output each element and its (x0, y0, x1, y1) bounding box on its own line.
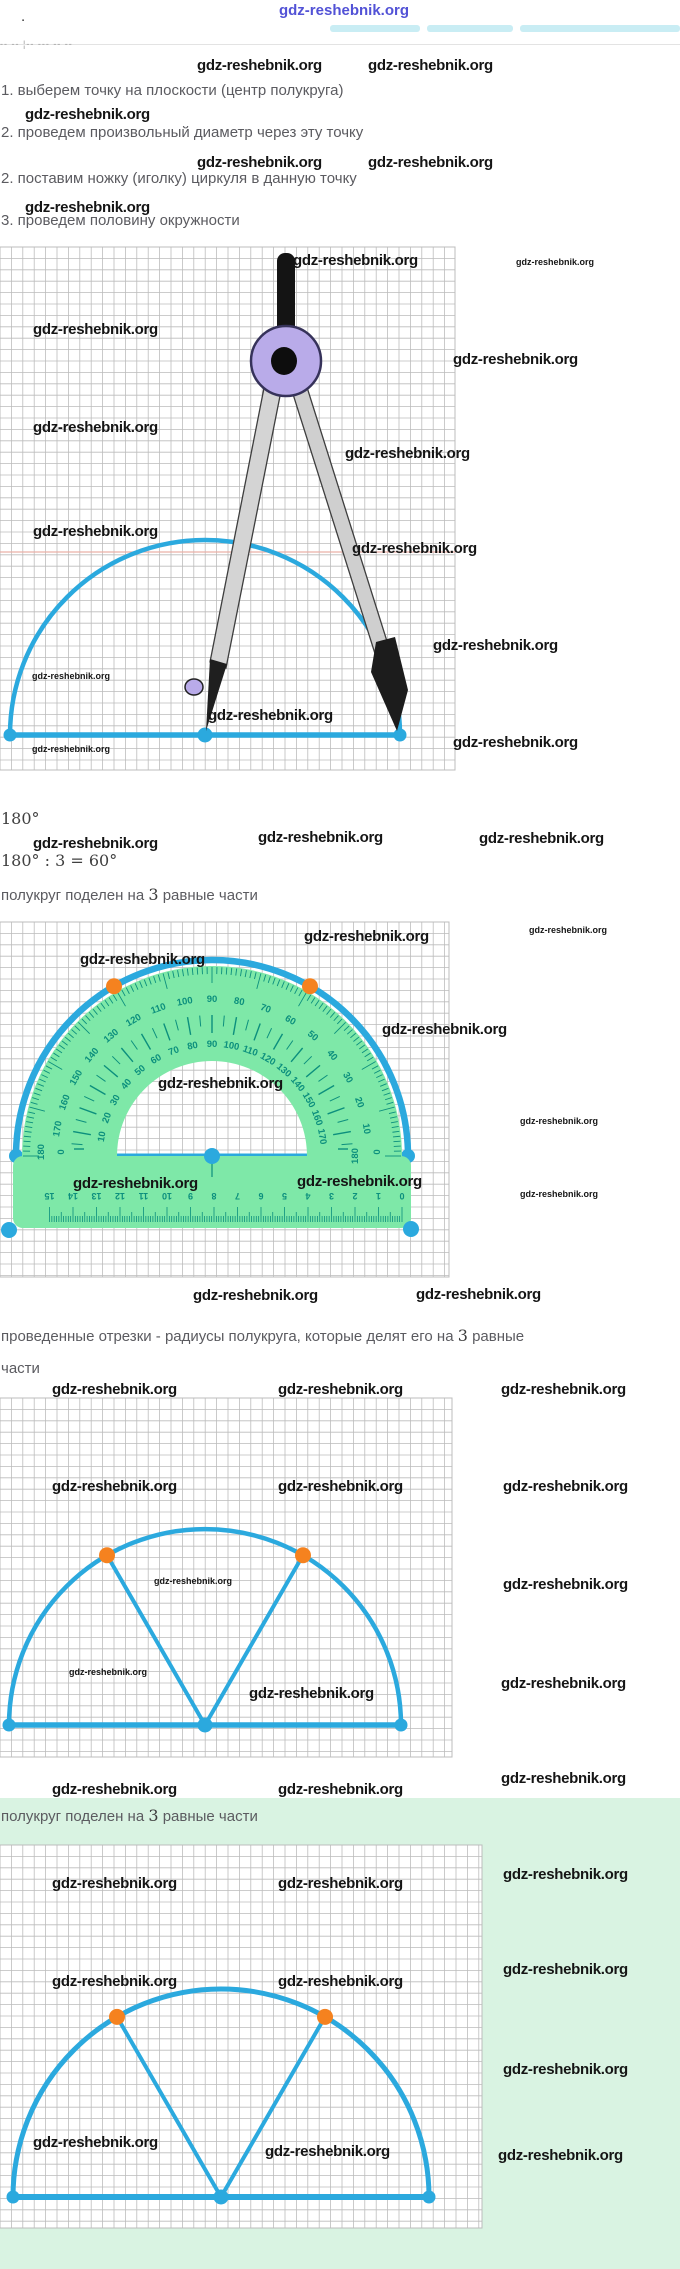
svg-text:180: 180 (36, 1144, 47, 1160)
svg-text:2: 2 (352, 1191, 357, 1201)
svg-text:10: 10 (360, 1123, 373, 1135)
division-point (106, 978, 122, 994)
caption-number: 3 (148, 1806, 158, 1825)
compass-handle (277, 253, 295, 335)
site-logo: gdz-reshebnik.org (264, 2, 424, 19)
caption-divided-2: полукруг поделен на 3 равные части (1, 1806, 258, 1825)
division-point (302, 978, 318, 994)
grid-paper (0, 1845, 482, 2228)
svg-text:12: 12 (115, 1191, 125, 1201)
svg-text:3: 3 (329, 1191, 334, 1201)
compass-hub (271, 347, 297, 375)
watermark: gdz-reshebnik.org (25, 106, 150, 123)
caption-text: полукруг поделен на (1, 887, 148, 904)
grid-paper (0, 1398, 452, 1757)
svg-text:90: 90 (207, 994, 218, 1005)
figure-protractor: 1017020160301504014050130601207011080100… (0, 912, 680, 1307)
caption-text: равные части (159, 887, 258, 904)
caption-number: 3 (148, 885, 158, 904)
step-4: 3. проведем половину окружности (1, 212, 240, 229)
header-dot: . (21, 8, 25, 25)
svg-text:13: 13 (91, 1191, 101, 1201)
watermark: gdz-reshebnik.org (368, 154, 493, 171)
svg-text:1: 1 (376, 1191, 381, 1201)
svg-text:9: 9 (188, 1191, 193, 1201)
svg-text:4: 4 (305, 1191, 310, 1201)
header-bar-2 (427, 25, 513, 32)
svg-text:5: 5 (282, 1191, 287, 1201)
svg-text:7: 7 (235, 1191, 240, 1201)
step-2: 2. проведем произвольный диаметр через э… (1, 124, 363, 141)
watermark: gdz-reshebnik.org (197, 57, 322, 74)
svg-text:80: 80 (186, 1040, 198, 1053)
caption-radii-line1: проведенные отрезки - радиусы полукруга,… (1, 1326, 524, 1345)
svg-text:0: 0 (56, 1149, 67, 1154)
svg-text:11: 11 (139, 1191, 149, 1201)
caption-text: равные (468, 1328, 524, 1345)
watermark: gdz-reshebnik.org (258, 829, 383, 846)
caption-text: проведенные отрезки - радиусы полукруга,… (1, 1328, 458, 1345)
svg-text:80: 80 (233, 996, 245, 1009)
caption-number: 3 (458, 1326, 468, 1345)
svg-text:6: 6 (258, 1191, 263, 1201)
svg-text:15: 15 (44, 1191, 54, 1201)
watermark: gdz-reshebnik.org (33, 835, 158, 852)
header-divider (0, 44, 680, 45)
watermark: gdz-reshebnik.org (479, 830, 604, 847)
formula-division: 180° : 3 = 60° (1, 851, 117, 870)
svg-text:14: 14 (68, 1191, 78, 1201)
watermark: gdz-reshebnik.org (368, 57, 493, 74)
svg-text:180: 180 (350, 1148, 361, 1164)
compass-nut (185, 679, 203, 695)
figure-compass-semicircle (0, 243, 680, 783)
svg-text:90: 90 (207, 1039, 218, 1050)
watermark: gdz-reshebnik.org (197, 154, 322, 171)
header-bar-3 (520, 25, 680, 32)
figure-semicircle-final (0, 1840, 680, 2240)
caption-text: равные части (159, 1808, 258, 1825)
caption-text: полукруг поделен на (1, 1808, 148, 1825)
page: gdz-reshebnik.org . -- -- ¦-- --- -- -- … (0, 0, 680, 2269)
svg-text:0: 0 (399, 1191, 404, 1201)
watermark: gdz-reshebnik.org (52, 1781, 177, 1798)
header-bar-1 (330, 25, 420, 32)
clipped-text-fragment: -- -- ¦-- --- -- -- (0, 39, 100, 49)
watermark: gdz-reshebnik.org (278, 1781, 403, 1798)
center-dot (204, 1148, 220, 1164)
caption-radii-line2: части (1, 1360, 40, 1377)
svg-text:10: 10 (96, 1130, 109, 1142)
svg-text:0: 0 (372, 1149, 383, 1154)
step-3: 2. поставим ножку (иголку) циркуля в дан… (1, 170, 357, 187)
caption-divided-1: полукруг поделен на 3 равные части (1, 885, 258, 904)
svg-text:8: 8 (211, 1191, 216, 1201)
formula-180: 180° (1, 809, 40, 828)
watermark: gdz-reshebnik.org (501, 1770, 626, 1787)
svg-text:10: 10 (162, 1191, 172, 1201)
step-1: 1. выберем точку на плоскости (центр пол… (1, 82, 343, 99)
figure-semicircle-radii (0, 1393, 680, 1765)
